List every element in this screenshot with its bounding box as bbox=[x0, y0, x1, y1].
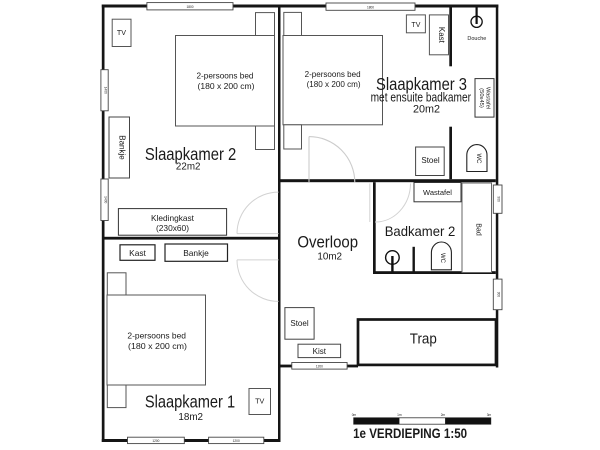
svg-text:3m: 3m bbox=[487, 413, 492, 417]
svg-text:1200: 1200 bbox=[152, 439, 159, 443]
svg-text:(180 x 200 cm): (180 x 200 cm) bbox=[307, 80, 361, 89]
svg-text:Bankje: Bankje bbox=[183, 248, 209, 258]
svg-text:2-persoons bed: 2-persoons bed bbox=[197, 72, 254, 81]
svg-text:1200: 1200 bbox=[233, 439, 240, 443]
svg-text:Stoel: Stoel bbox=[421, 156, 439, 165]
svg-text:18m2: 18m2 bbox=[178, 412, 203, 423]
svg-text:1400: 1400 bbox=[104, 87, 108, 94]
svg-text:1m: 1m bbox=[397, 413, 402, 417]
svg-text:Kast: Kast bbox=[129, 248, 146, 258]
svg-text:900: 900 bbox=[497, 196, 501, 202]
svg-text:Wastafel: Wastafel bbox=[423, 188, 452, 197]
svg-text:1400: 1400 bbox=[104, 196, 108, 203]
svg-text:Wastafel(50x45): Wastafel(50x45) bbox=[478, 87, 491, 109]
svg-text:Bad: Bad bbox=[475, 223, 482, 236]
svg-text:Kledingkast: Kledingkast bbox=[151, 213, 195, 223]
svg-text:20m2: 20m2 bbox=[413, 103, 440, 115]
svg-text:(180 x 200 cm): (180 x 200 cm) bbox=[198, 82, 255, 91]
svg-text:Stoel: Stoel bbox=[290, 319, 308, 328]
svg-text:22m2: 22m2 bbox=[176, 161, 201, 172]
svg-text:0m: 0m bbox=[352, 413, 357, 417]
svg-text:1200: 1200 bbox=[316, 364, 323, 368]
svg-text:2m: 2m bbox=[441, 413, 446, 417]
svg-text:WC: WC bbox=[475, 154, 481, 165]
svg-text:Badkamer 2: Badkamer 2 bbox=[385, 224, 456, 239]
svg-text:2-persoons bed: 2-persoons bed bbox=[127, 332, 186, 341]
svg-text:10m2: 10m2 bbox=[317, 252, 342, 263]
svg-text:Kast: Kast bbox=[437, 27, 446, 44]
svg-text:(230x60): (230x60) bbox=[156, 223, 189, 233]
svg-text:900: 900 bbox=[497, 292, 501, 298]
svg-text:TV: TV bbox=[411, 22, 420, 29]
svg-text:(180 x 200 cm): (180 x 200 cm) bbox=[128, 342, 187, 351]
svg-text:1800: 1800 bbox=[367, 5, 374, 9]
svg-text:1800: 1800 bbox=[186, 5, 193, 9]
svg-text:TV: TV bbox=[117, 28, 126, 37]
svg-text:Douche: Douche bbox=[467, 36, 486, 42]
svg-text:Trap: Trap bbox=[410, 332, 437, 348]
svg-text:2-persoons bed: 2-persoons bed bbox=[305, 70, 361, 79]
svg-text:TV: TV bbox=[255, 397, 264, 406]
svg-text:Bankje: Bankje bbox=[118, 135, 127, 160]
svg-text:WC: WC bbox=[439, 253, 445, 264]
svg-text:Kist: Kist bbox=[313, 347, 327, 356]
svg-text:1e VERDIEPING 1:50: 1e VERDIEPING 1:50 bbox=[353, 425, 467, 441]
svg-text:Slaapkamer 1: Slaapkamer 1 bbox=[145, 392, 235, 412]
svg-text:Overloop: Overloop bbox=[297, 232, 358, 251]
